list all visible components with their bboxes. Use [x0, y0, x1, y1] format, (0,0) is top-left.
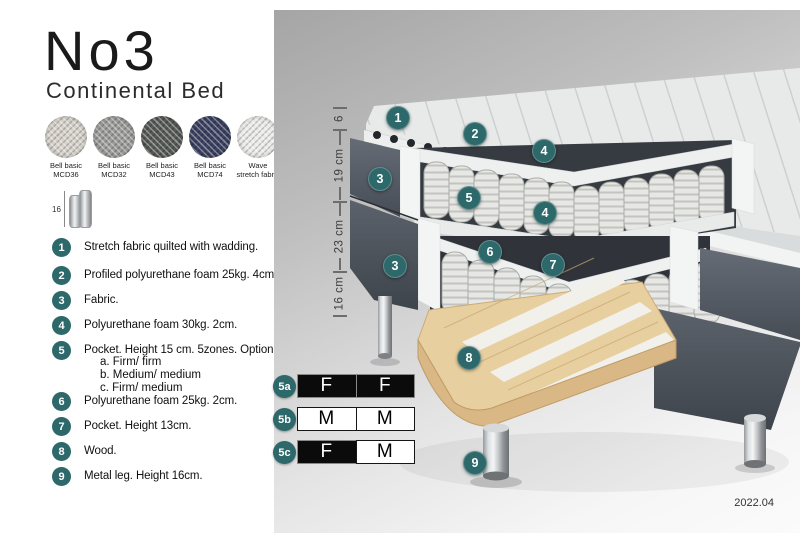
fabric-swatch-icon	[93, 116, 135, 158]
fabric-swatch-icon	[141, 116, 183, 158]
legend-item-9: 9 Metal leg. Height 16cm.	[52, 467, 270, 486]
legend-text: Profiled polyurethane foam 25kg. 4cm.	[84, 266, 277, 281]
firmness-cell: M	[356, 440, 416, 464]
swatch-mcd32: Bell basicMCD32	[91, 116, 137, 180]
firmness-label-5a: 5a	[273, 375, 296, 398]
legend-item-7: 7 Pocket. Height 13cm.	[52, 417, 270, 436]
legend-item-6: 6 Polyurethane foam 25kg. 2cm.	[52, 392, 270, 411]
metal-leg-icon: 16	[52, 190, 92, 228]
legend-text: Pocket. Height 15 cm. 5zones. Option:	[84, 341, 277, 356]
legend-item-3: 3 Fabric.	[52, 291, 270, 310]
firmness-row-5b: M M	[297, 407, 415, 431]
legend-number-badge: 7	[52, 417, 71, 436]
firmness-cell: F	[356, 374, 416, 398]
fabric-swatch-icon	[45, 116, 87, 158]
leg-height-line	[64, 191, 65, 227]
legend-number-badge: 1	[52, 238, 71, 257]
swatch-mcd43: Bell basicMCD43	[139, 116, 185, 180]
callout-2: 2	[463, 122, 487, 146]
callout-8: 8	[457, 346, 481, 370]
legend-number-badge: 8	[52, 442, 71, 461]
swatch-name: Wave	[249, 161, 268, 170]
fabric-swatch-icon	[189, 116, 231, 158]
legend-text: Pocket. Height 13cm.	[84, 417, 191, 432]
swatch-mcd74: Bell basicMCD74	[187, 116, 233, 180]
callout-3a: 3	[368, 167, 392, 191]
swatch-code: MCD36	[53, 170, 78, 179]
product-sheet: No3 Continental Bed Bell basicMCD36 Bell…	[0, 0, 800, 533]
leg-height-label: 16	[52, 205, 61, 214]
page-subtitle: Continental Bed	[46, 78, 225, 104]
legend-text: Metal leg. Height 16cm.	[84, 467, 203, 482]
legend-number-badge: 2	[52, 266, 71, 285]
floor-shadow	[399, 432, 789, 492]
version-stamp: 2022.04	[734, 497, 774, 509]
legend-text: Stretch fabric quilted with wadding.	[84, 238, 258, 253]
callout-4a: 4	[532, 139, 556, 163]
legend-text: Polyurethane foam 30kg. 2cm.	[84, 316, 237, 331]
legend-item-4: 4 Polyurethane foam 30kg. 2cm.	[52, 316, 270, 335]
legend-number-badge: 4	[52, 316, 71, 335]
dim-label-mattress: 19 cm	[334, 138, 347, 194]
swatch-name: Bell basic	[50, 161, 82, 170]
callout-5: 5	[457, 186, 481, 210]
legend-number-badge: 9	[52, 467, 71, 486]
callout-1: 1	[386, 106, 410, 130]
callout-3b: 3	[383, 254, 407, 278]
firmness-cell: F	[297, 440, 357, 464]
legend-text: Fabric.	[84, 291, 118, 306]
legend-text: Wood.	[84, 442, 117, 457]
dim-label-box: 23 cm	[334, 209, 347, 265]
option-b: b. Medium/ medium	[100, 369, 201, 382]
callout-7: 7	[541, 253, 565, 277]
swatch-mcd36: Bell basicMCD36	[43, 116, 89, 180]
legend-item-2: 2 Profiled polyurethane foam 25kg. 4cm.	[52, 266, 270, 285]
callout-6: 6	[478, 240, 502, 264]
page-title: No3	[44, 18, 159, 83]
swatch-name: Bell basic	[194, 161, 226, 170]
legend-text: Polyurethane foam 25kg. 2cm.	[84, 392, 237, 407]
firmness-row-5a: F F	[297, 374, 415, 398]
legend-number-badge: 6	[52, 392, 71, 411]
firmness-label-5c: 5c	[273, 441, 296, 464]
option-a: a. Firm/ firm	[100, 356, 201, 369]
firmness-label-5b: 5b	[273, 408, 296, 431]
fabric-swatches: Bell basicMCD36 Bell basicMCD32 Bell bas…	[43, 116, 281, 180]
legend-item-5-options: a. Firm/ firm b. Medium/ medium c. Firm/…	[100, 356, 201, 395]
firmness-cell: M	[356, 407, 416, 431]
legend-number-badge: 3	[52, 291, 71, 310]
firmness-cell: M	[297, 407, 357, 431]
swatch-code: MCD32	[101, 170, 126, 179]
fabric-swatch-icon	[237, 116, 279, 158]
legend-number-badge: 5	[52, 341, 71, 360]
legend-item-8: 8 Wood.	[52, 442, 270, 461]
legend-item-1: 1 Stretch fabric quilted with wadding.	[52, 238, 270, 257]
firmness-row-5c: F M	[297, 440, 415, 464]
swatch-code: MCD43	[149, 170, 174, 179]
firmness-cell: F	[297, 374, 357, 398]
callout-9: 9	[463, 451, 487, 475]
dim-label-leg: 16 cm	[334, 266, 347, 322]
leg-cylinder-icon	[79, 190, 92, 228]
swatch-code: MCD74	[197, 170, 222, 179]
callout-4b: 4	[533, 201, 557, 225]
swatch-name: Bell basic	[98, 161, 130, 170]
swatch-name: Bell basic	[146, 161, 178, 170]
